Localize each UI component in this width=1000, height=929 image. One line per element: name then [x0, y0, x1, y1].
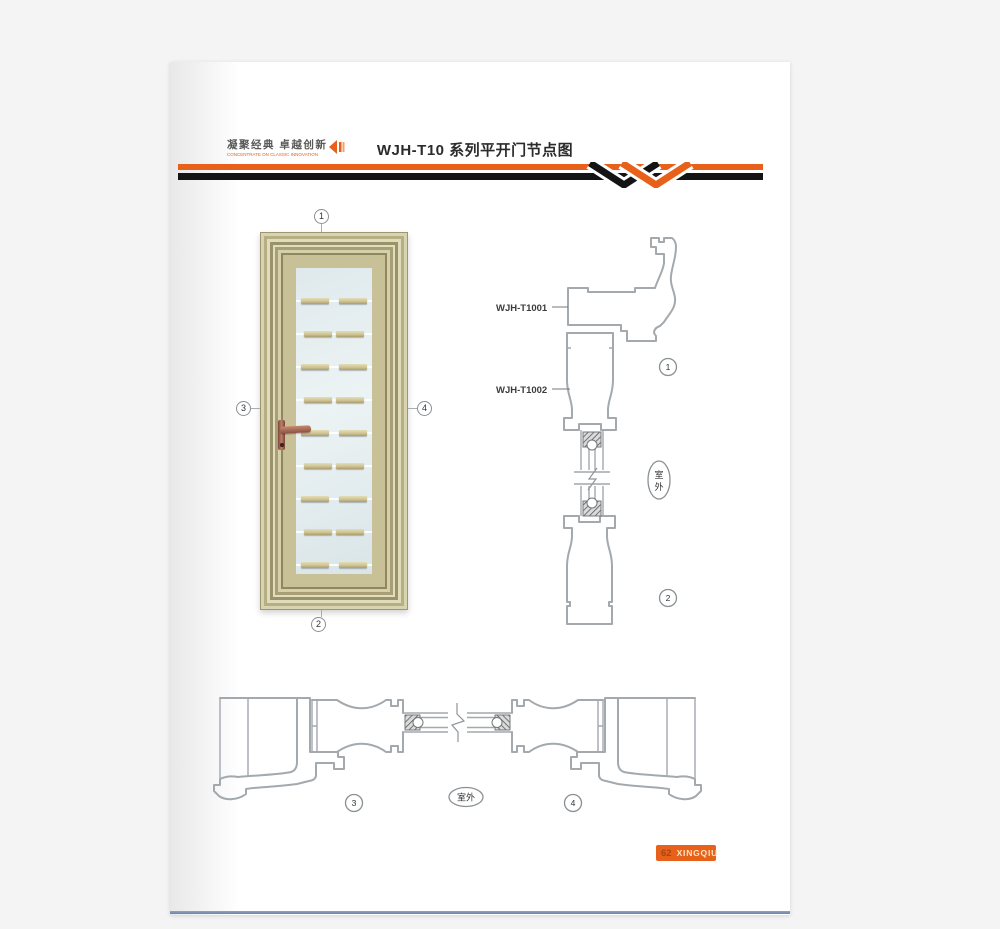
break-symbol	[574, 468, 610, 490]
logo-slogan-en: CONCENTRATE ON CLASSIC INNOVATION	[227, 152, 292, 157]
glass-bar-row	[296, 529, 372, 535]
brand-name: XINGQIU	[677, 848, 719, 858]
gasket-arc	[587, 498, 597, 508]
leader-line-4	[408, 408, 417, 409]
page-number-badge: 62 XINGQIU	[656, 845, 716, 861]
vertical-section-drawing: WJH-T1001 WJH-T1002 1 室 外 2	[488, 232, 700, 640]
door-callout-3: 3	[236, 401, 251, 416]
catalog-page: 凝聚经典 卓越创新 CONCENTRATE ON CLASSIC INNOVAT…	[0, 0, 1000, 929]
door-frosted-glass	[296, 268, 372, 574]
frame-head-profile	[568, 238, 676, 341]
door-handle-keyhole	[280, 443, 284, 447]
glass-bar-row	[296, 331, 372, 337]
door-callout-2: 2	[311, 617, 326, 632]
profile-label-1: WJH-T1001	[496, 303, 548, 314]
outdoor-char-bottom: 外	[654, 481, 663, 492]
leader-line-1	[321, 224, 322, 232]
profile-label-2: WJH-T1002	[496, 385, 547, 396]
footer-blue-line	[170, 911, 790, 914]
glass-bar-row	[296, 496, 372, 502]
outdoor-ellipse-vertical	[648, 461, 670, 499]
header-band	[178, 162, 763, 188]
bottom-sash-profile	[564, 516, 615, 624]
callout-number: 4	[571, 798, 576, 808]
glass-bar-row	[296, 562, 372, 568]
page-number: 62	[661, 848, 672, 859]
callout-number: 4	[422, 403, 427, 413]
leader-line-2	[321, 610, 322, 617]
left-half-profiles	[214, 698, 451, 799]
gasket-arc	[587, 440, 597, 450]
leader-line-3	[251, 408, 260, 409]
top-sash-profile	[564, 333, 616, 430]
outdoor-label: 室外	[457, 792, 475, 803]
callout-number: 2	[316, 619, 321, 629]
door-photo	[260, 232, 408, 610]
door-callout-4: 4	[417, 401, 432, 416]
paper-sheet: 凝聚经典 卓越创新 CONCENTRATE ON CLASSIC INNOVAT…	[170, 62, 790, 915]
door-callout-1: 1	[314, 209, 329, 224]
horizontal-section-drawing: 室外 3 4	[205, 690, 755, 820]
glass-bar-row	[296, 463, 372, 469]
brand-logo: 凝聚经典 卓越创新 CONCENTRATE ON CLASSIC INNOVAT…	[227, 137, 357, 163]
callout-number: 3	[241, 403, 246, 413]
callout-number: 1	[666, 362, 671, 372]
glass-bar-row	[296, 364, 372, 370]
right-half-profiles	[464, 698, 701, 799]
glass-bar-row	[296, 298, 372, 304]
callout-number: 1	[319, 211, 324, 221]
callout-number: 2	[666, 593, 671, 603]
outdoor-char-top: 室	[654, 469, 663, 480]
logo-speaker-icon	[329, 140, 345, 154]
callout-number: 3	[352, 798, 357, 808]
page-title: WJH-T10 系列平开门节点图	[350, 141, 600, 161]
door-leaf-frame	[273, 245, 395, 597]
glass-bar-row	[296, 397, 372, 403]
